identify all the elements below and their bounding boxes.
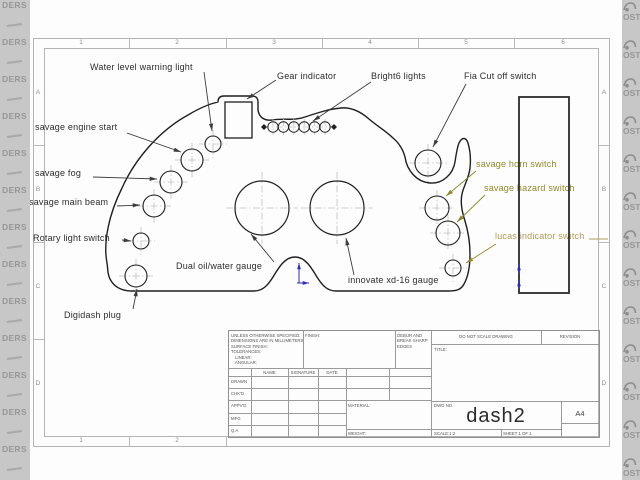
row-mfg: MFG: [231, 416, 241, 421]
zone-letter-right: A: [599, 89, 609, 96]
watermark-dash: [7, 356, 22, 360]
label-innovate: innovate xd-16 gauge: [348, 275, 439, 285]
label-digidash: Digidash plug: [64, 310, 121, 320]
watermark-text: DERS: [0, 259, 30, 269]
watermark-text: OST: [622, 88, 640, 98]
title-label: TITLE:: [434, 347, 447, 352]
watermark-dash: [7, 134, 22, 138]
watermark-dash: [7, 282, 22, 286]
watermark-tile: DERS: [0, 407, 30, 444]
watermark-text: DERS: [0, 37, 30, 47]
row-appvd: APPV'D: [231, 403, 246, 408]
watermark-text: OST: [622, 316, 640, 326]
watermark-tile: DERS: [0, 444, 30, 480]
watermark-tile: DERS: [0, 296, 30, 333]
watermark-text: DERS: [0, 185, 30, 195]
zone-number-top: 2: [169, 39, 185, 46]
label-water-level: Water level warning light: [90, 62, 193, 72]
label-horn: savage horn switch: [476, 159, 557, 169]
watermark-text: DERS: [0, 111, 30, 121]
watermark-dash: [7, 171, 22, 175]
car-doodle-icon: [623, 381, 637, 392]
label-lucas: lucas indicator switch: [495, 231, 584, 241]
watermark-tile: OST: [622, 1, 640, 38]
tolerance-note: UNLESS OTHERWISE SPECIFIED: DIMENSIONS A…: [231, 333, 303, 365]
watermark-tile: OST: [622, 115, 640, 152]
zone-tick: [322, 38, 323, 48]
material-label: MATERIAL:: [348, 403, 370, 408]
name-column-header: NAME: [251, 370, 288, 375]
watermark-text: OST: [622, 164, 640, 174]
zone-number-top: 6: [555, 39, 571, 46]
zone-tick: [129, 436, 130, 446]
date-column-header: DATE: [318, 370, 346, 375]
watermark-tile: DERS: [0, 185, 30, 222]
zone-letter-left: A: [33, 89, 43, 96]
zone-letter-right: C: [599, 283, 609, 290]
car-doodle-icon: [623, 77, 637, 88]
debur-note: DEBUR AND BREAK SHARP EDGES: [397, 333, 428, 349]
label-gear: Gear indicator: [277, 71, 336, 81]
drawing-number: dash2: [431, 405, 561, 428]
sheet-label: SHEET 1 OF 1: [503, 431, 532, 436]
watermark-text: OST: [622, 240, 640, 250]
label-fog: savage fog: [35, 168, 81, 178]
watermark-tile: DERS: [0, 111, 30, 148]
watermark-tile: DERS: [0, 148, 30, 185]
watermark-dash: [7, 467, 22, 471]
watermark-text: DERS: [0, 222, 30, 232]
title-block: UNLESS OTHERWISE SPECIFIED: DIMENSIONS A…: [228, 330, 600, 438]
watermark-tile: DERS: [0, 333, 30, 370]
watermark-text: DERS: [0, 0, 30, 10]
label-dual-gauge: Dual oil/water gauge: [176, 261, 262, 271]
watermark-tile: DERS: [0, 0, 30, 37]
zone-tick: [598, 145, 609, 146]
watermark-tile: OST: [622, 267, 640, 304]
car-doodle-icon: [623, 153, 637, 164]
watermark-tile: OST: [622, 381, 640, 418]
signature-column-header: SIGNATURE: [288, 370, 318, 375]
cad-drawing-page: 1 2 3 4 5 6 1 2 A B C D A B C D: [0, 0, 640, 480]
zone-number-top: 4: [362, 39, 378, 46]
watermark-tile: OST: [622, 457, 640, 480]
zone-letter-left: C: [33, 283, 43, 290]
watermark-tile: DERS: [0, 222, 30, 259]
zone-number-top: 1: [73, 39, 89, 46]
zone-letter-left: B: [33, 186, 43, 193]
watermark-text: OST: [622, 50, 640, 60]
watermark-left: DERS DERS DERS DERS DERS DERS DERS DERS …: [0, 0, 30, 480]
watermark-dash: [7, 245, 22, 249]
watermark-text: DERS: [0, 296, 30, 306]
car-doodle-icon: [623, 39, 637, 50]
car-doodle-icon: [623, 1, 637, 12]
zone-tick: [514, 38, 515, 48]
watermark-dash: [7, 208, 22, 212]
watermark-tile: DERS: [0, 37, 30, 74]
zone-number-bottom: 1: [73, 437, 89, 444]
car-doodle-icon: [623, 229, 637, 240]
zone-tick: [129, 38, 130, 48]
watermark-tile: OST: [622, 191, 640, 228]
watermark-text: DERS: [0, 148, 30, 158]
watermark-text: DERS: [0, 370, 30, 380]
revision-label: REVISION: [541, 334, 599, 339]
label-rotary: Rotary light switch: [33, 233, 110, 243]
car-doodle-icon: [623, 343, 637, 354]
row-qa: Q.A: [231, 428, 238, 433]
label-bright6: Bright6 lights: [371, 71, 426, 81]
watermark-dash: [7, 97, 22, 101]
zone-number-top: 5: [458, 39, 474, 46]
paper-size: A4: [561, 409, 599, 418]
watermark-text: OST: [622, 278, 640, 288]
watermark-tile: OST: [622, 153, 640, 190]
watermark-text: OST: [622, 392, 640, 402]
car-doodle-icon: [623, 419, 637, 430]
watermark-dash: [7, 60, 22, 64]
watermark-tile: OST: [622, 305, 640, 342]
car-doodle-icon: [623, 115, 637, 126]
zone-tick: [33, 145, 44, 146]
watermark-dash: [7, 23, 22, 27]
weight-label: WEIGHT:: [348, 431, 366, 436]
label-engine-start: savage engine start: [35, 122, 117, 132]
watermark-text: OST: [622, 126, 640, 136]
zone-number-top: 3: [266, 39, 282, 46]
label-hazard: savage hazard switch: [484, 183, 575, 193]
watermark-dash: [7, 319, 22, 323]
scale-label: SCALE:1:2: [434, 431, 455, 436]
zone-tick: [226, 436, 227, 446]
watermark-dash: [7, 430, 22, 434]
car-doodle-icon: [623, 267, 637, 278]
zone-letter-right: B: [599, 186, 609, 193]
watermark-text: DERS: [0, 74, 30, 84]
zone-letter-left: D: [33, 380, 43, 387]
car-doodle-icon: [623, 457, 637, 468]
zone-tick: [226, 38, 227, 48]
watermark-text: OST: [622, 430, 640, 440]
watermark-right: OST OST OST OST OST: [622, 0, 640, 480]
zone-tick: [33, 339, 44, 340]
watermark-tile: OST: [622, 343, 640, 380]
watermark-tile: DERS: [0, 370, 30, 407]
label-fia: Fia Cut off switch: [464, 71, 536, 81]
zone-tick: [418, 38, 419, 48]
watermark-tile: OST: [622, 39, 640, 76]
car-doodle-icon: [623, 305, 637, 316]
watermark-text: DERS: [0, 407, 30, 417]
watermark-text: OST: [622, 354, 640, 364]
watermark-text: DERS: [0, 444, 30, 454]
zone-letter-right: D: [599, 380, 609, 387]
finish-label: FINISH:: [305, 333, 320, 338]
do-not-scale-note: DO NOT SCALE DRAWING: [431, 334, 541, 339]
zone-number-bottom: 2: [169, 437, 185, 444]
row-drawn: DRAWN: [231, 379, 247, 384]
car-doodle-icon: [623, 191, 637, 202]
watermark-tile: DERS: [0, 259, 30, 296]
watermark-text: OST: [622, 202, 640, 212]
zone-tick: [598, 242, 609, 243]
watermark-text: OST: [622, 12, 640, 22]
watermark-tile: OST: [622, 229, 640, 266]
watermark-tile: DERS: [0, 74, 30, 111]
watermark-tile: OST: [622, 419, 640, 456]
label-main-beam: savage main beam: [29, 197, 108, 207]
watermark-text: DERS: [0, 333, 30, 343]
watermark-text: OST: [622, 468, 640, 478]
row-chkd: CHK'D: [231, 391, 244, 396]
watermark-dash: [7, 393, 22, 397]
watermark-tile: OST: [622, 77, 640, 114]
